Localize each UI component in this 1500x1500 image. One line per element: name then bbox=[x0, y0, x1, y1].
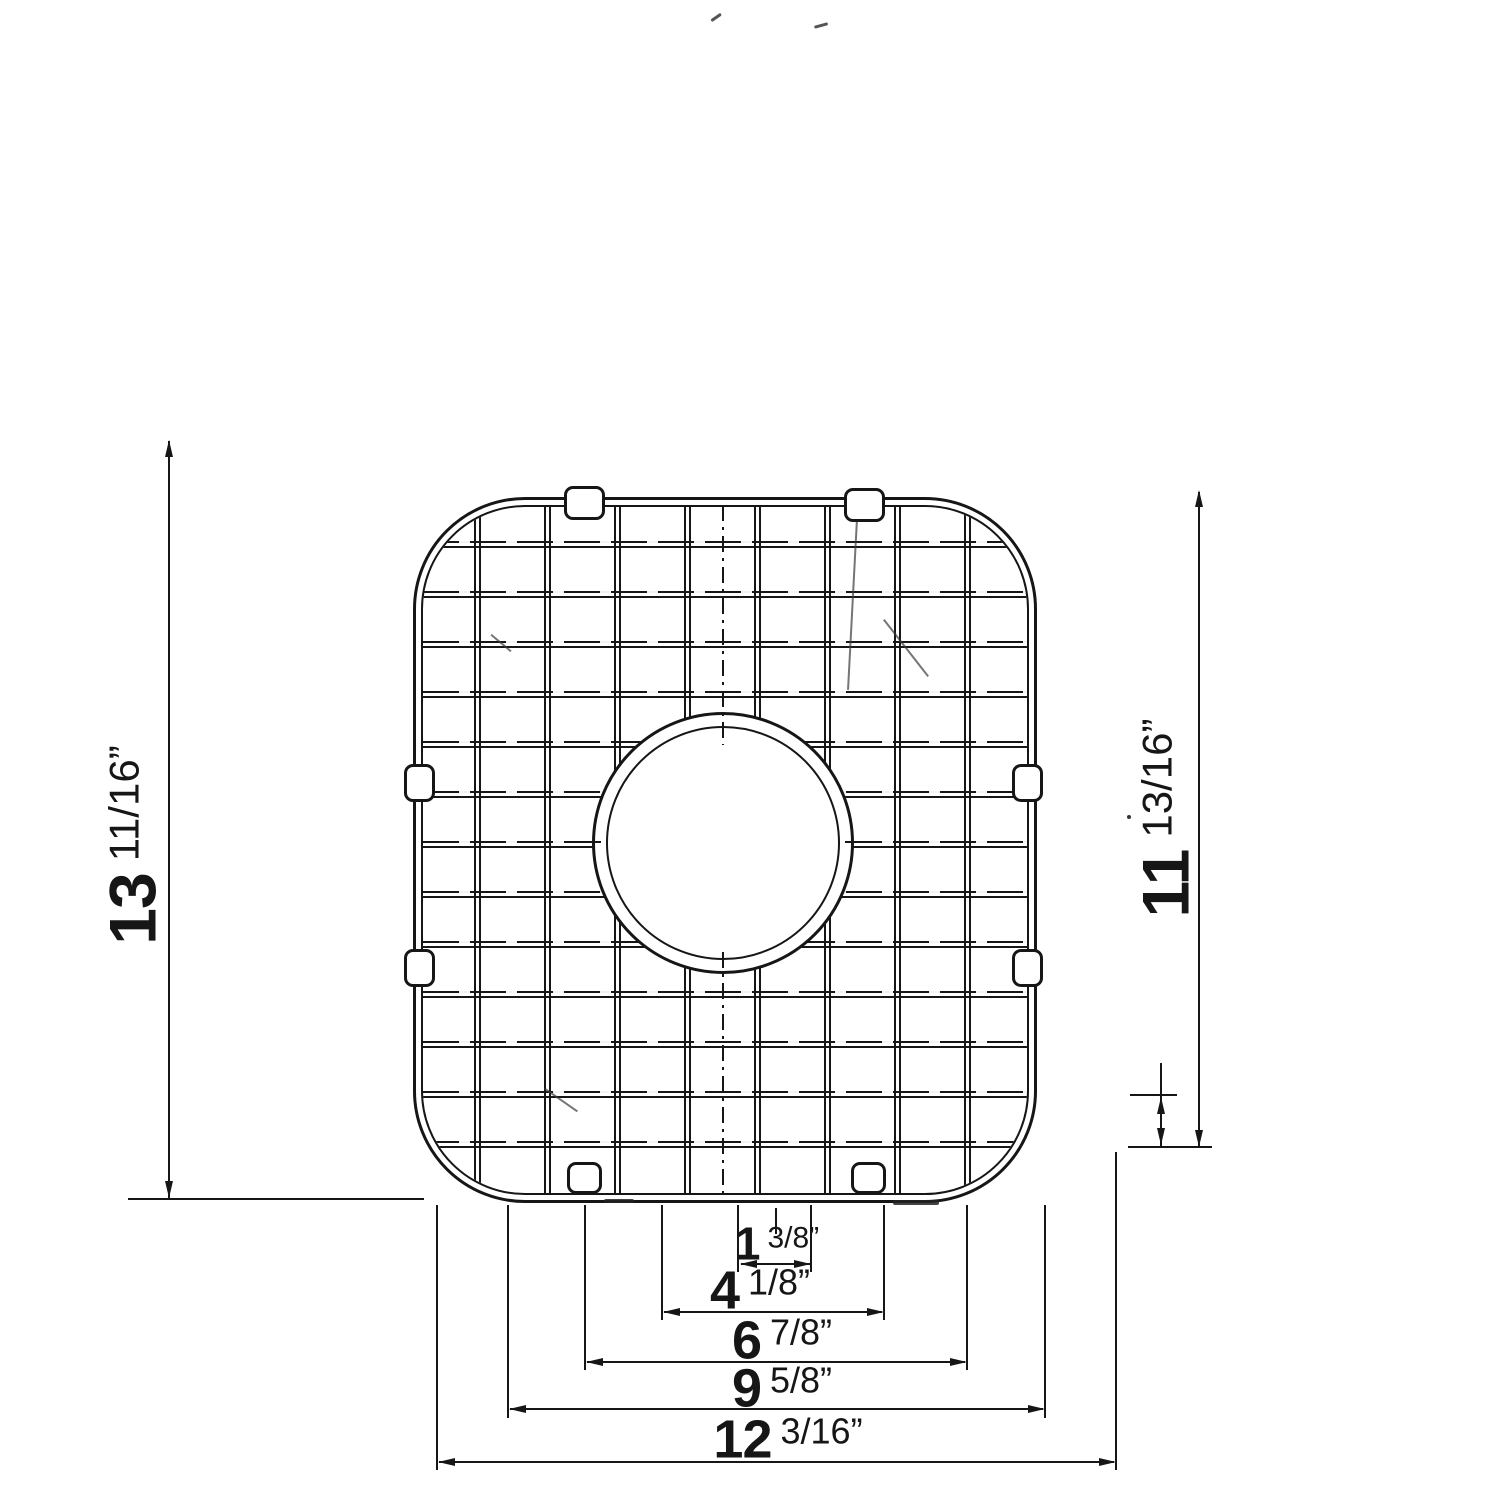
arrowhead-down bbox=[1195, 1130, 1203, 1147]
dim-label-width-2: 4 1/8” bbox=[710, 1267, 810, 1316]
arrowhead-up bbox=[1195, 490, 1203, 507]
rubber-foot-right-lower bbox=[1012, 949, 1043, 987]
inch-mark: ” bbox=[820, 1312, 832, 1353]
grid-wire-horizontal bbox=[423, 541, 1027, 548]
rubber-foot-bottom-right bbox=[851, 1162, 886, 1194]
dim-fraction: 5/8” bbox=[770, 1365, 832, 1397]
fraction-text: 3/16 bbox=[781, 1411, 851, 1452]
fraction-text: 7/8 bbox=[770, 1312, 820, 1353]
fraction-text: 3/8 bbox=[767, 1222, 809, 1255]
arrowhead-up bbox=[165, 440, 173, 457]
extension-line bbox=[507, 1205, 509, 1418]
rubber-foot-left-upper bbox=[404, 764, 435, 802]
extension-line bbox=[1044, 1205, 1046, 1418]
extension-line bbox=[436, 1205, 438, 1470]
rubber-foot-right-upper bbox=[1012, 764, 1043, 802]
dimension-line-height-left bbox=[168, 441, 170, 1198]
inch-mark: ” bbox=[100, 745, 147, 759]
arrowhead-down bbox=[1157, 1128, 1165, 1145]
dim-whole: 4 bbox=[710, 1267, 739, 1316]
extension-line bbox=[661, 1205, 663, 1320]
centerline bbox=[722, 952, 724, 1203]
dim-fraction: 3/8” bbox=[767, 1225, 819, 1252]
dim-fraction: 7/8” bbox=[770, 1317, 832, 1349]
extension-tick bbox=[1130, 1094, 1177, 1096]
arrowhead-right bbox=[950, 1358, 967, 1366]
arrowhead-left bbox=[663, 1308, 680, 1316]
fraction-text: 13/16 bbox=[1133, 733, 1180, 838]
extension-line bbox=[584, 1205, 586, 1370]
dim-whole: 11 bbox=[1136, 850, 1195, 918]
drain-opening-inner-ring bbox=[606, 726, 840, 960]
grid-wire-horizontal bbox=[423, 691, 1027, 698]
scan-smudge bbox=[893, 1200, 939, 1205]
dim-label-width-4: 9 5/8” bbox=[732, 1365, 832, 1414]
arrowhead-left bbox=[509, 1405, 526, 1413]
inch-mark: ” bbox=[1133, 719, 1180, 733]
grid-wire-horizontal bbox=[423, 591, 1027, 598]
dim-label-height-left: 13 11/16” bbox=[103, 745, 162, 944]
arrowhead-right bbox=[1099, 1458, 1116, 1466]
inch-mark: ” bbox=[851, 1411, 863, 1452]
fraction-text: 11/16 bbox=[100, 759, 147, 861]
dim-fraction: 13/16” bbox=[1138, 719, 1176, 838]
centerline-tick bbox=[583, 841, 601, 843]
fraction-text: 1/8 bbox=[748, 1262, 798, 1303]
arrowhead-left bbox=[586, 1358, 603, 1366]
grid-wire-horizontal bbox=[423, 1041, 1027, 1048]
dim-whole: 1 bbox=[735, 1223, 760, 1264]
dim-fraction: 3/16” bbox=[781, 1416, 863, 1448]
rubber-foot-top-right bbox=[844, 488, 885, 522]
drawing-canvas: 13 11/16” 11 13/16” 1 3/8” 4 1/8” 6 7/8” bbox=[0, 0, 1500, 1500]
scan-speck bbox=[710, 13, 721, 22]
extension-line bbox=[128, 1198, 424, 1200]
extension-line bbox=[883, 1205, 885, 1320]
dim-fraction: 1/8” bbox=[748, 1267, 810, 1299]
extension-line bbox=[966, 1205, 968, 1370]
scan-smudge bbox=[604, 1199, 634, 1203]
dimension-line-height-right bbox=[1198, 492, 1200, 1147]
inch-mark: ” bbox=[820, 1360, 832, 1401]
centerline bbox=[722, 505, 724, 745]
inch-mark: ” bbox=[798, 1262, 810, 1303]
dim-label-height-right: 11 13/16” bbox=[1136, 719, 1195, 918]
arrowhead-right bbox=[1028, 1405, 1045, 1413]
rubber-foot-left-lower bbox=[404, 949, 435, 987]
arrowhead-up bbox=[1157, 1097, 1165, 1114]
dim-fraction: 11/16” bbox=[105, 745, 143, 861]
scan-speck bbox=[814, 22, 828, 28]
dim-label-width-1: 1 3/8” bbox=[735, 1223, 819, 1264]
dim-whole: 9 bbox=[732, 1365, 761, 1414]
inch-mark: ” bbox=[809, 1222, 819, 1255]
centerline-tick bbox=[845, 841, 863, 843]
grid-wire-horizontal bbox=[423, 1141, 1027, 1148]
arrowhead-left bbox=[438, 1458, 455, 1466]
rubber-foot-bottom-left bbox=[567, 1162, 602, 1194]
arrowhead-down bbox=[165, 1181, 173, 1198]
extension-line bbox=[1115, 1152, 1117, 1470]
fraction-text: 5/8 bbox=[770, 1360, 820, 1401]
extension-line bbox=[1128, 1146, 1212, 1148]
rubber-foot-top-left bbox=[564, 486, 605, 520]
arrowhead-right bbox=[867, 1308, 884, 1316]
grid-wire-horizontal bbox=[423, 1091, 1027, 1098]
grid-wire-horizontal bbox=[423, 991, 1027, 998]
scan-dot bbox=[1127, 815, 1131, 819]
dim-label-width-5: 12 3/16” bbox=[713, 1416, 862, 1465]
grid-wire-horizontal bbox=[423, 641, 1027, 648]
dim-whole: 12 bbox=[713, 1416, 771, 1465]
dim-whole: 13 bbox=[103, 873, 162, 944]
